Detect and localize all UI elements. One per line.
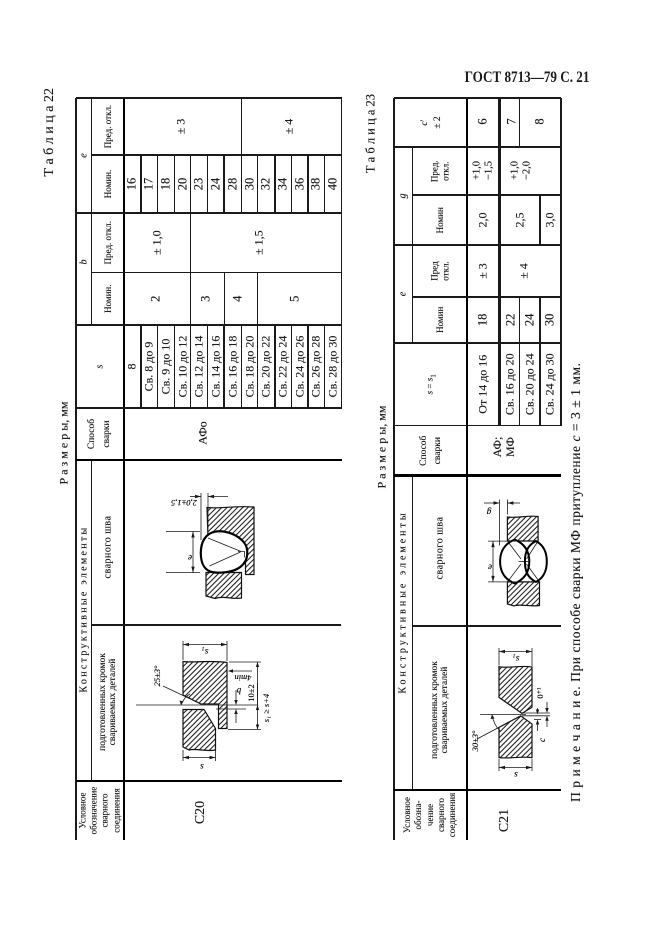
svg-text:s: s [200, 762, 204, 772]
svg-text:c: c [537, 738, 547, 742]
svg-text:s₁ ≥ s+4: s₁ ≥ s+4 [261, 693, 271, 722]
svg-text:30±3°: 30±3° [470, 730, 480, 752]
svg-text:e: e [488, 563, 492, 573]
svg-text:2,0±1,5: 2,0±1,5 [171, 498, 197, 508]
svg-text:s₁: s₁ [513, 654, 520, 664]
svg-text:4min: 4min [235, 673, 252, 683]
svg-text:0⁺¹: 0⁺¹ [535, 687, 545, 699]
svg-text:e: e [188, 553, 192, 563]
svg-text:b: b [236, 686, 241, 696]
svg-text:25±3°: 25±3° [152, 665, 162, 686]
svg-text:g: g [486, 508, 491, 518]
svg-text:s: s [514, 770, 518, 780]
svg-text:10±2: 10±2 [246, 684, 256, 701]
svg-text:s₁: s₁ [202, 647, 209, 657]
